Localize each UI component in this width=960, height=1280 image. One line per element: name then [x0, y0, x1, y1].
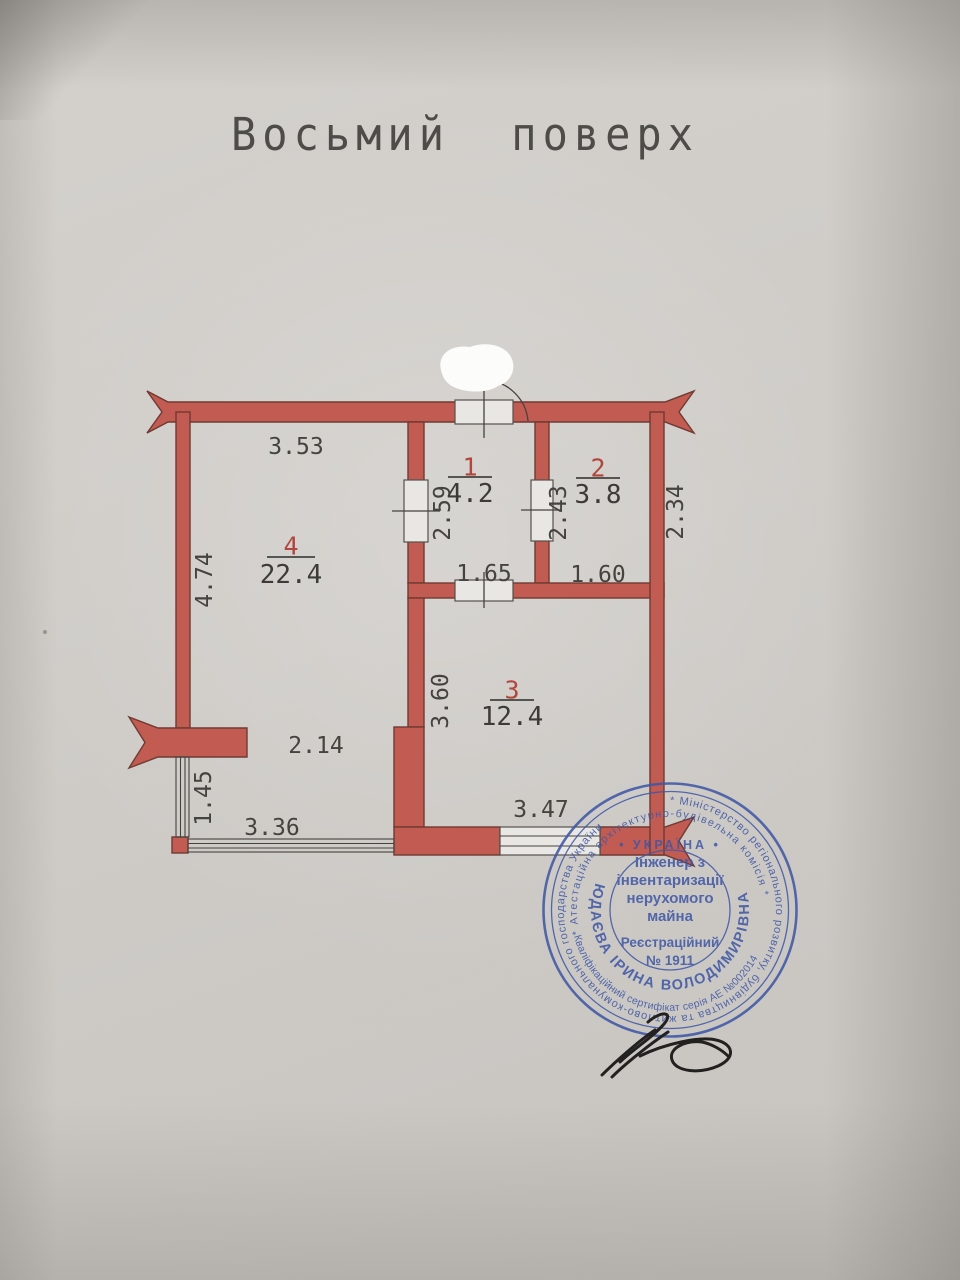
room3-bottom-wall-left	[394, 827, 500, 855]
dim-balcony-left: 1.45	[191, 770, 217, 825]
scanned-floorplan-page: Восьмий поверх	[0, 0, 960, 1280]
dim-room3-width: 3.47	[513, 797, 568, 823]
dim-room2-width: 1.60	[570, 562, 625, 588]
left-wall	[176, 412, 190, 728]
wall-room4-room3-lower	[394, 727, 424, 827]
wall-room4-room3-upper	[408, 598, 424, 727]
dim-room1-width: 1.65	[456, 561, 511, 587]
dim-room2-right: 2.34	[663, 484, 689, 539]
dim-room4-left: 4.74	[192, 552, 218, 607]
dim-room4-lower: 2.14	[288, 733, 343, 759]
paper-speck	[43, 630, 47, 634]
stamp-title-line3: нерухомого	[626, 890, 713, 907]
room4-area: 22.4	[260, 560, 323, 590]
signature	[602, 1014, 731, 1077]
balcony-window-left	[176, 757, 189, 837]
room3-area: 12.4	[481, 702, 544, 732]
stamp-title-line2: інвентаризації	[617, 872, 725, 889]
dim-balcony-bottom: 3.36	[244, 815, 299, 841]
dim-room3-height: 3.60	[428, 673, 454, 728]
room1-area: 4.2	[447, 479, 494, 509]
stamp-title-line4: майна	[647, 908, 694, 925]
stamp-registration-label: Реєстраційний	[621, 935, 720, 950]
room2-area: 3.8	[575, 480, 622, 510]
stamp-registration-number: № 1911	[646, 953, 695, 968]
dim-room4-top: 3.53	[268, 434, 323, 460]
stamp-title-line1: Інженер з	[635, 854, 705, 871]
floor-plan: 3.53 4.74 2.59 2.43 2.34 1.65 1.60 3.60 …	[0, 0, 960, 1280]
right-wall	[650, 412, 664, 855]
balcony-corner-post	[172, 837, 188, 853]
engineer-stamp: * Міністерство регіонального розвитку, б…	[544, 784, 797, 1037]
dim-room2-height: 2.43	[546, 485, 572, 540]
stamp-country-line: • УКРАЇНА •	[619, 837, 721, 852]
